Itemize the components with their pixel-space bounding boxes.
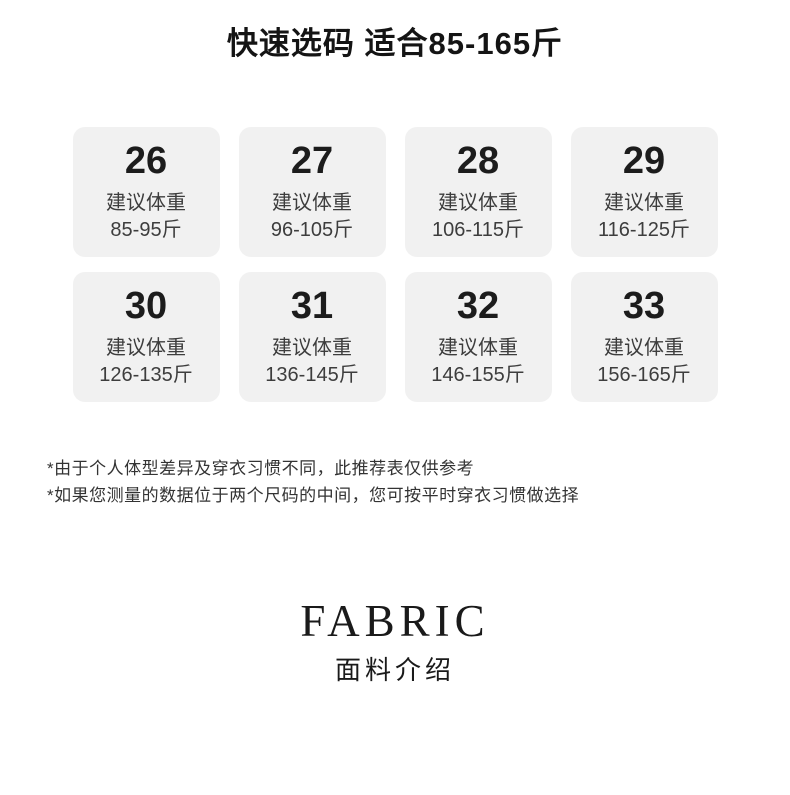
page-title: 快速选码 适合85-165斤 [0,0,790,63]
size-card-30: 30 建议体重 126-135斤 [73,272,220,402]
size-weight-range: 116-125斤 [598,217,690,244]
footnote-line-2: *如果您测量的数据位于两个尺码的中间，您可按平时穿衣习惯做选择 [47,482,790,509]
size-number: 32 [457,285,499,327]
size-number: 26 [125,140,167,182]
size-card-31: 31 建议体重 136-145斤 [239,272,386,402]
size-card-26: 26 建议体重 85-95斤 [73,127,220,257]
size-label: 建议体重 [604,190,684,217]
size-number: 28 [457,140,499,182]
size-weight-range: 126-135斤 [99,362,192,389]
size-card-33: 33 建议体重 156-165斤 [571,272,718,402]
size-card-28: 28 建议体重 106-115斤 [405,127,552,257]
size-card-grid: 26 建议体重 85-95斤 27 建议体重 96-105斤 28 建议体重 1… [73,127,718,402]
size-label: 建议体重 [272,335,352,362]
size-weight-range: 96-105斤 [271,217,353,244]
fabric-section-header: FABRIC 面料介绍 [0,595,790,687]
size-weight-range: 156-165斤 [597,362,690,389]
size-card-27: 27 建议体重 96-105斤 [239,127,386,257]
size-label: 建议体重 [106,190,186,217]
footnote-line-1: *由于个人体型差异及穿衣习惯不同，此推荐表仅供参考 [47,455,790,482]
size-label: 建议体重 [106,335,186,362]
size-number: 30 [125,285,167,327]
size-number: 31 [291,285,333,327]
size-weight-range: 106-115斤 [432,217,524,244]
footnotes: *由于个人体型差异及穿衣习惯不同，此推荐表仅供参考 *如果您测量的数据位于两个尺… [47,455,790,509]
size-card-32: 32 建议体重 146-155斤 [405,272,552,402]
size-weight-range: 85-95斤 [110,217,181,244]
size-guide-page: 快速选码 适合85-165斤 26 建议体重 85-95斤 27 建议体重 96… [0,0,790,795]
size-label: 建议体重 [438,190,518,217]
size-number: 29 [623,140,665,182]
size-number: 33 [623,285,665,327]
size-card-29: 29 建议体重 116-125斤 [571,127,718,257]
fabric-heading-en: FABRIC [0,595,790,647]
size-weight-range: 136-145斤 [265,362,358,389]
size-number: 27 [291,140,333,182]
size-label: 建议体重 [438,335,518,362]
size-label: 建议体重 [604,335,684,362]
size-weight-range: 146-155斤 [431,362,524,389]
fabric-heading-zh: 面料介绍 [0,653,790,687]
size-label: 建议体重 [272,190,352,217]
